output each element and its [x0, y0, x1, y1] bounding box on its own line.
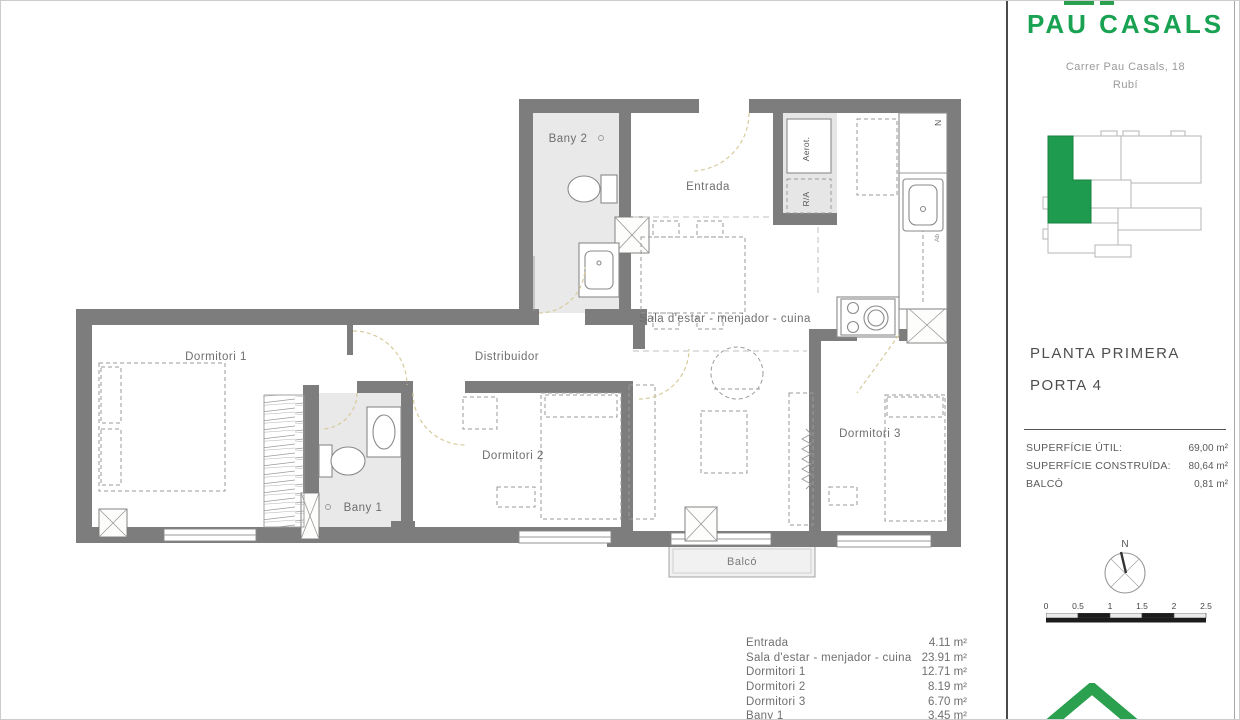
- scale-labels: 0 0.5 1 1.5 2 2.5: [1046, 601, 1208, 612]
- compass-north-label: N: [1121, 539, 1128, 550]
- project-city: Rubí: [1008, 79, 1240, 91]
- sheet-right-border: [1234, 1, 1235, 720]
- label-nevera: N: [933, 120, 943, 126]
- area-row: Dormitori 3 6.70 m²: [746, 696, 967, 711]
- north-compass: N: [1085, 535, 1165, 605]
- area-row: Sala d'estar - menjador - cuina 23.91 m²: [746, 652, 967, 667]
- room-label-sala: Sala d'estar - menjador - cuina: [639, 313, 811, 325]
- project-address: Carrer Pau Casals, 18: [1008, 61, 1240, 73]
- room-label-bany2: Bany 2: [549, 133, 588, 145]
- logo-cutoff: [1064, 1, 1114, 5]
- divider-rule: [1024, 429, 1226, 430]
- area-row: Dormitori 2 8.19 m²: [746, 681, 967, 696]
- key-plan: [1042, 113, 1222, 261]
- surface-row: SUPERFÍCIE CONSTRUÏDA: 80,64 m²: [1026, 457, 1228, 475]
- room-label-bany1: Bany 1: [344, 502, 383, 514]
- wardrobe: [264, 395, 304, 527]
- surface-summary: SUPERFÍCIE ÚTIL: 69,00 m² SUPERFÍCIE CON…: [1026, 439, 1228, 493]
- label-ra: R/A: [801, 191, 811, 206]
- room-label-distribuidor: Distribuidor: [475, 351, 539, 363]
- area-row: Entrada 4.11 m²: [746, 637, 967, 652]
- area-row: Bany 1 3.45 m²: [746, 710, 967, 720]
- floor-label: PLANTA PRIMERA: [1030, 345, 1180, 362]
- label-aerot: Aerot.: [801, 137, 811, 161]
- room-label-dormitori3: Dormitori 3: [839, 428, 901, 440]
- title-block: PAU CASALS Carrer Pau Casals, 18 Rubí PL…: [1006, 1, 1240, 720]
- drawing-sheet: Bany 2 Entrada Sala d'estar - menjador -…: [0, 0, 1240, 720]
- room-label-entrada: Entrada: [686, 181, 730, 193]
- label-ab: Ab: [934, 234, 941, 242]
- brand-chevron-logo: [1044, 683, 1144, 720]
- door-label: PORTA 4: [1030, 377, 1102, 394]
- scale-bar: [1046, 613, 1208, 624]
- floor-plan: Bany 2 Entrada Sala d'estar - menjador -…: [1, 1, 1006, 720]
- areas-table: Entrada 4.11 m² Sala d'estar - menjador …: [746, 637, 967, 720]
- surface-row: BALCÓ 0,81 m²: [1026, 475, 1228, 493]
- area-row: Dormitori 1 12.71 m²: [746, 666, 967, 681]
- surface-row: SUPERFÍCIE ÚTIL: 69,00 m²: [1026, 439, 1228, 457]
- room-label-balco: Balcó: [727, 556, 757, 568]
- room-label-dormitori2: Dormitori 2: [482, 450, 544, 462]
- room-label-dormitori1: Dormitori 1: [185, 351, 247, 363]
- project-title: PAU CASALS: [1008, 9, 1240, 40]
